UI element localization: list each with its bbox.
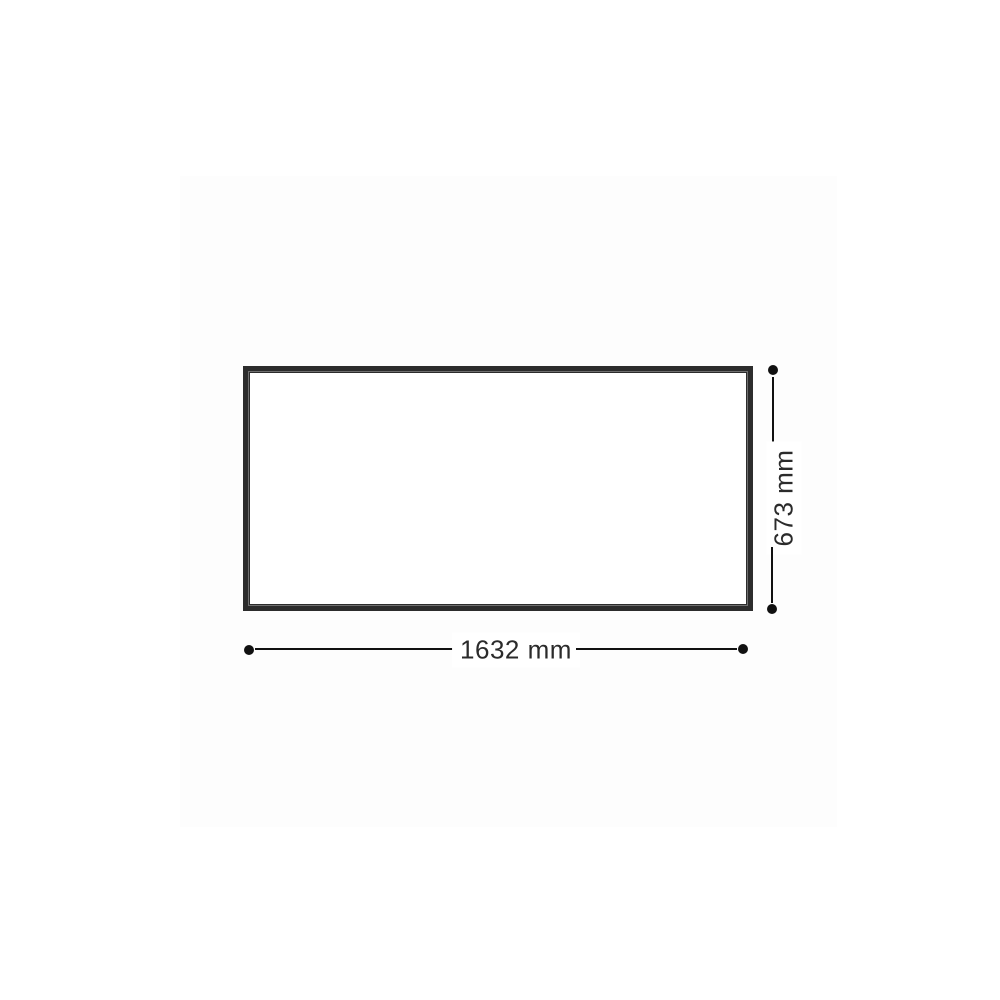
height-dimension-label: 673 mm (766, 442, 801, 555)
panel-frame-outline (243, 366, 753, 611)
dimension-endpoint-dot (738, 644, 748, 654)
dimension-line-segment (576, 648, 737, 650)
dimension-endpoint-dot (244, 645, 254, 655)
dimension-line-segment (255, 648, 458, 650)
width-dimension-label: 1632 mm (452, 632, 580, 667)
dimension-line-segment (772, 377, 774, 449)
dimension-line-segment (771, 547, 773, 603)
product-dimension-diagram: 673 mm 1632 mm (0, 0, 1000, 1000)
dimension-endpoint-dot (768, 365, 778, 375)
dimension-endpoint-dot (767, 604, 777, 614)
